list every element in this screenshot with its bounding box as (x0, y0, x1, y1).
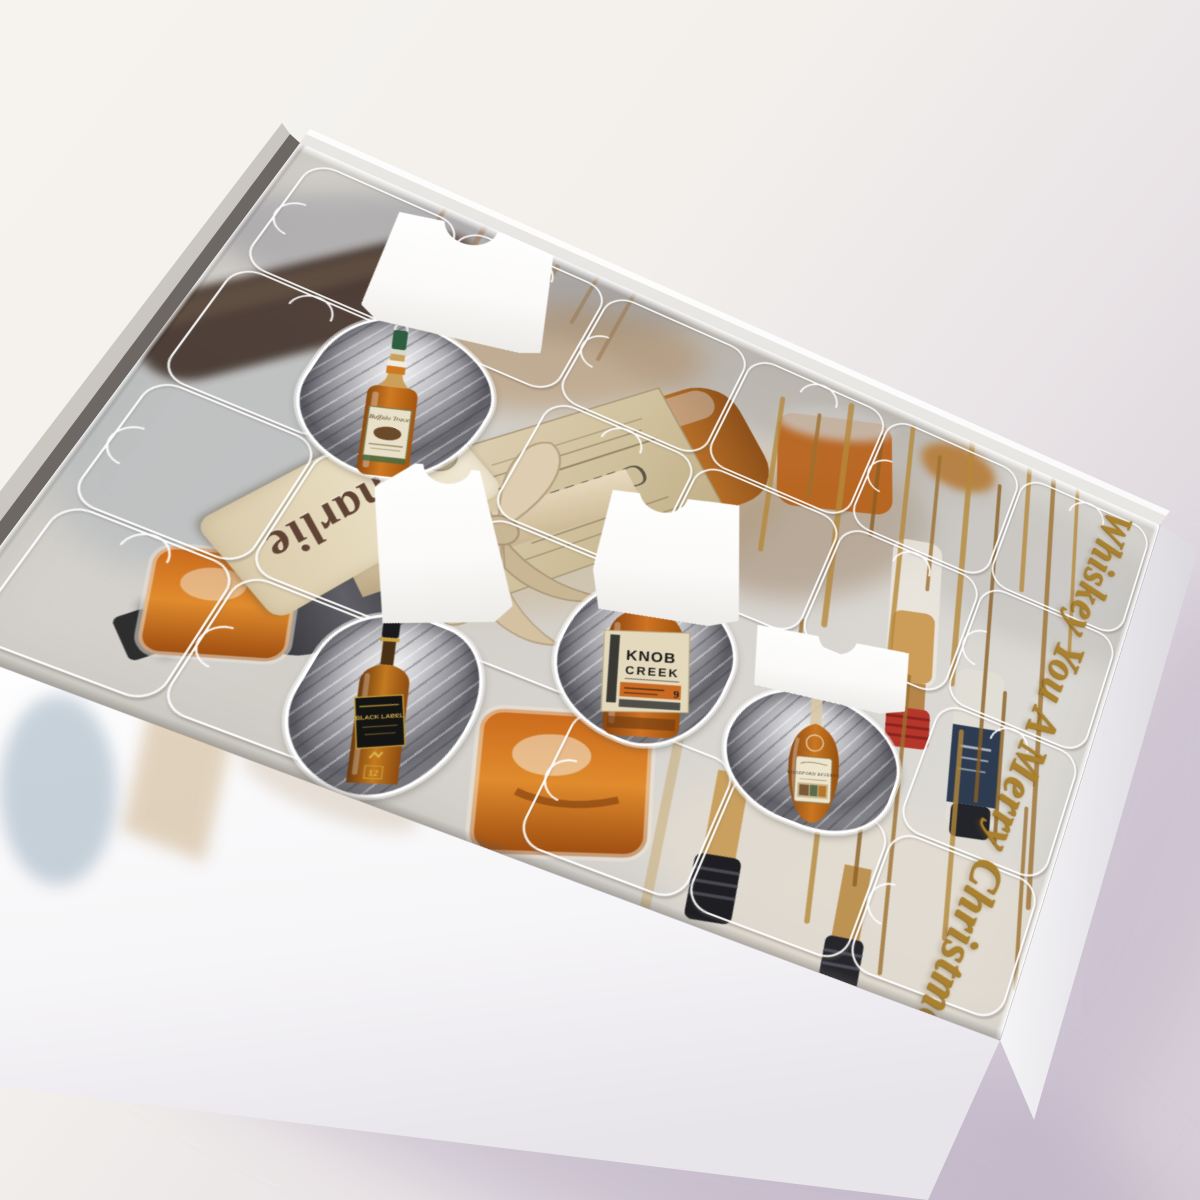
product-photo-stage: CHAIL (0, 0, 1200, 1200)
bottle-johnnie-walker: BLACK LABEL 12 (331, 611, 430, 796)
door-thumb-notch (536, 752, 601, 810)
kc-paper-label: KNOB CREEK 9 (599, 626, 692, 716)
jw-age-text: 12 (368, 768, 379, 778)
bottle-buffalo-trace: Buffalo Trace (337, 320, 442, 487)
kc-age-text: 9 (673, 690, 679, 701)
door-thumb-notch (96, 419, 170, 474)
front-face-blue-art (0, 695, 116, 885)
door-thumb-notch (792, 377, 843, 424)
door-thumb-notch (264, 196, 328, 245)
